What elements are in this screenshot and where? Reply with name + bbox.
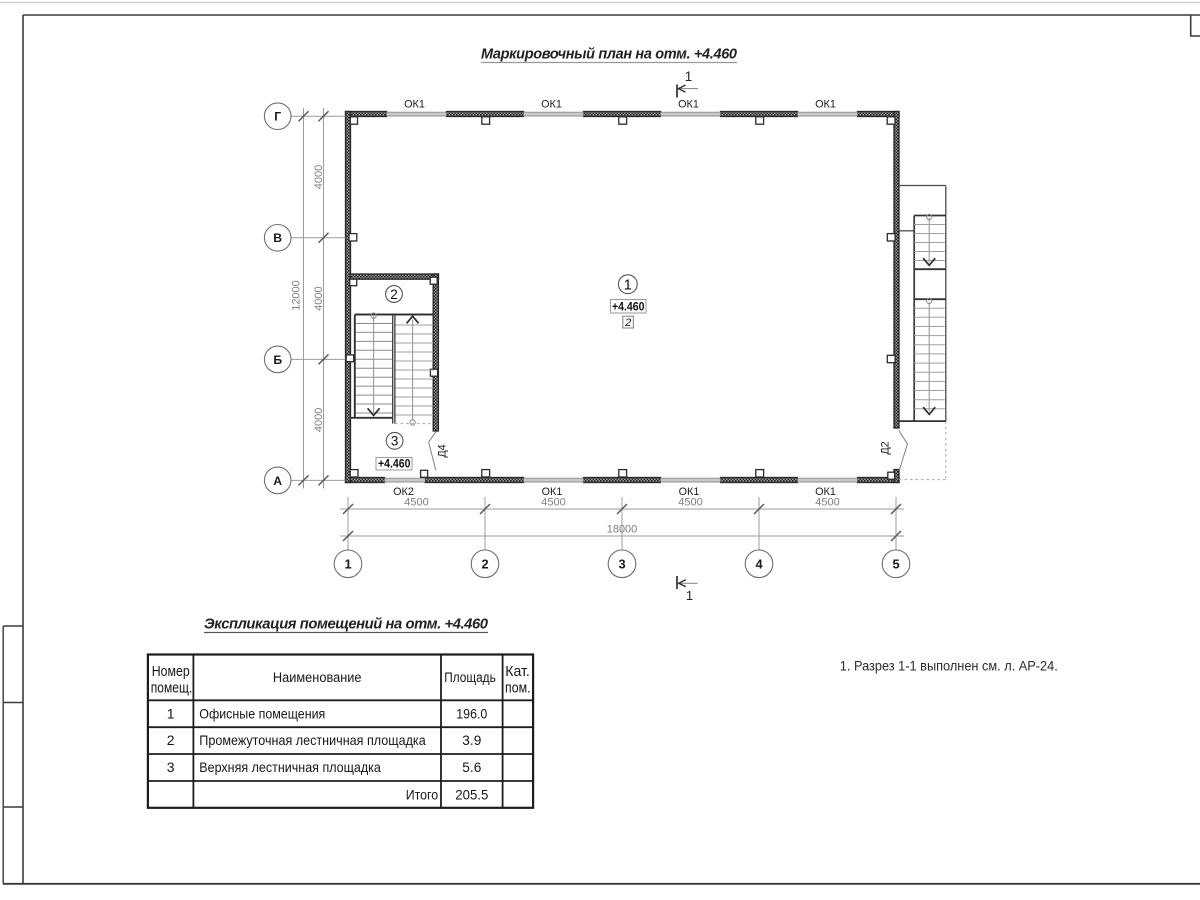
svg-text:5: 5	[892, 556, 899, 571]
svg-text:18000: 18000	[607, 524, 638, 536]
svg-text:3: 3	[618, 556, 625, 571]
svg-text:12000: 12000	[291, 280, 303, 311]
svg-text:Площадь: Площадь	[444, 670, 496, 685]
svg-text:пом.: пом.	[505, 680, 531, 696]
svg-text:2: 2	[624, 317, 631, 329]
svg-text:4500: 4500	[678, 497, 702, 509]
svg-text:А: А	[273, 474, 282, 488]
svg-text:ОК1: ОК1	[678, 99, 699, 111]
svg-text:1. Разрез 1-1 выполнен см. л.: 1. Разрез 1-1 выполнен см. л. АР-24.	[840, 658, 1058, 673]
svg-text:205.5: 205.5	[455, 787, 488, 803]
svg-text:4000: 4000	[313, 165, 325, 189]
svg-text:Кат.: Кат.	[505, 664, 530, 680]
svg-text:Д4: Д4	[437, 444, 449, 457]
svg-text:2: 2	[390, 287, 398, 302]
svg-text:+4.460: +4.460	[378, 459, 411, 471]
svg-text:Номер: Номер	[152, 664, 190, 680]
svg-text:Верхняя лестничная площадка: Верхняя лестничная площадка	[199, 759, 381, 775]
svg-text:4000: 4000	[313, 408, 325, 432]
svg-text:Г: Г	[274, 110, 281, 124]
svg-text:Наименование: Наименование	[273, 670, 362, 685]
svg-text:5.6: 5.6	[462, 759, 481, 775]
svg-text:ОК1: ОК1	[404, 99, 425, 111]
svg-text:2: 2	[481, 556, 488, 571]
svg-text:ОК1: ОК1	[541, 99, 562, 111]
svg-text:1: 1	[624, 277, 632, 293]
svg-text:4: 4	[755, 556, 763, 571]
svg-text:В: В	[273, 231, 282, 245]
svg-text:4500: 4500	[404, 497, 428, 509]
svg-text:1: 1	[167, 705, 175, 721]
svg-text:4500: 4500	[541, 497, 565, 509]
svg-text:1: 1	[686, 588, 693, 603]
svg-text:1: 1	[344, 556, 351, 571]
svg-text:Маркировочный план на отм. +4.: Маркировочный план на отм. +4.460	[481, 47, 737, 63]
svg-text:+4.460: +4.460	[612, 301, 645, 313]
svg-text:3: 3	[167, 759, 175, 775]
svg-text:196.0: 196.0	[456, 705, 487, 721]
svg-text:2: 2	[167, 732, 175, 748]
svg-text:Д2: Д2	[880, 441, 892, 454]
svg-text:помещ.: помещ.	[151, 680, 193, 696]
svg-text:4000: 4000	[313, 286, 325, 310]
svg-text:3.9: 3.9	[462, 732, 481, 748]
svg-text:4500: 4500	[815, 497, 839, 509]
svg-text:ОК1: ОК1	[815, 99, 836, 111]
svg-text:Б: Б	[273, 353, 282, 367]
svg-text:Экспликация помещений на отм.: Экспликация помещений на отм. +4.460	[204, 617, 489, 633]
svg-text:Промежуточная лестничная площа: Промежуточная лестничная площадка	[199, 732, 426, 748]
svg-text:Итого: Итого	[406, 787, 439, 803]
svg-text:3: 3	[391, 434, 399, 449]
svg-text:Офисные помещения: Офисные помещения	[199, 705, 325, 721]
svg-text:1: 1	[685, 69, 693, 84]
